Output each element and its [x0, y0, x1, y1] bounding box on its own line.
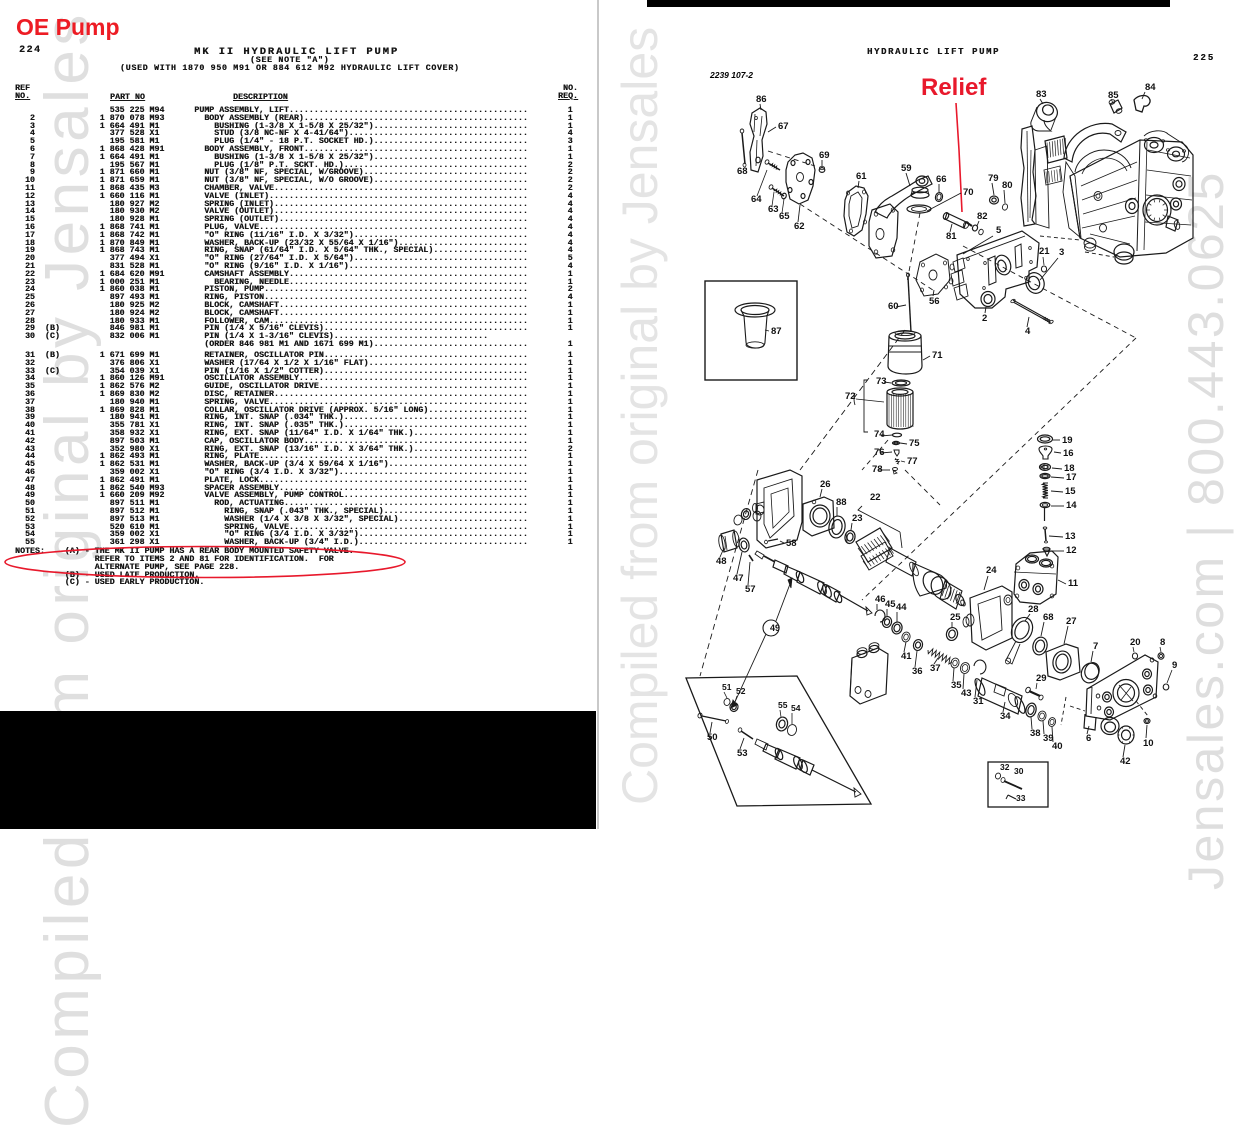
- svg-text:84: 84: [1145, 82, 1156, 93]
- svg-text:40: 40: [1052, 741, 1063, 752]
- svg-text:81: 81: [946, 231, 957, 242]
- svg-text:4: 4: [1025, 326, 1031, 337]
- svg-text:22: 22: [870, 492, 881, 503]
- svg-text:65: 65: [779, 211, 790, 222]
- svg-text:33: 33: [1016, 793, 1026, 803]
- svg-text:47: 47: [733, 573, 744, 584]
- svg-text:88: 88: [836, 497, 847, 508]
- svg-text:55: 55: [778, 700, 788, 710]
- svg-text:63: 63: [768, 204, 779, 215]
- svg-text:86: 86: [756, 94, 767, 105]
- svg-text:23: 23: [852, 513, 863, 524]
- svg-text:24: 24: [986, 565, 997, 576]
- svg-text:9: 9: [1172, 660, 1177, 671]
- svg-text:77: 77: [907, 456, 918, 467]
- svg-text:36: 36: [912, 666, 923, 677]
- svg-text:57: 57: [745, 584, 756, 595]
- svg-text:27: 27: [1066, 616, 1077, 627]
- svg-text:10: 10: [1143, 738, 1154, 749]
- svg-text:56: 56: [929, 296, 940, 307]
- svg-text:35: 35: [951, 680, 962, 691]
- svg-text:82: 82: [977, 211, 988, 222]
- svg-text:79: 79: [988, 173, 999, 184]
- svg-text:68: 68: [1043, 612, 1054, 623]
- svg-text:51: 51: [722, 682, 732, 692]
- svg-text:21: 21: [1039, 246, 1050, 257]
- svg-text:3: 3: [1059, 247, 1064, 258]
- svg-text:30: 30: [1014, 766, 1024, 776]
- svg-text:59: 59: [901, 163, 912, 174]
- svg-text:78: 78: [872, 464, 883, 475]
- svg-text:50: 50: [707, 732, 718, 743]
- svg-text:41: 41: [901, 651, 912, 662]
- svg-text:52: 52: [736, 686, 746, 696]
- svg-text:68: 68: [737, 166, 748, 177]
- svg-text:70: 70: [963, 187, 974, 198]
- svg-text:58: 58: [786, 538, 797, 549]
- svg-text:16: 16: [1063, 448, 1074, 459]
- svg-text:45: 45: [885, 599, 896, 610]
- svg-text:38: 38: [1030, 728, 1041, 739]
- svg-text:7: 7: [1093, 641, 1098, 652]
- svg-text:28: 28: [1028, 604, 1039, 615]
- svg-text:54: 54: [791, 703, 801, 713]
- svg-text:19: 19: [1062, 435, 1073, 446]
- svg-text:85: 85: [1108, 90, 1119, 101]
- svg-text:8: 8: [1160, 637, 1165, 648]
- svg-text:87: 87: [771, 326, 782, 337]
- svg-text:64: 64: [751, 194, 762, 205]
- svg-text:15: 15: [1065, 486, 1076, 497]
- svg-text:34: 34: [1000, 711, 1011, 722]
- svg-text:53: 53: [737, 748, 748, 759]
- svg-text:32: 32: [1000, 762, 1010, 772]
- svg-text:73: 73: [876, 376, 887, 387]
- svg-text:80: 80: [1002, 180, 1013, 191]
- svg-text:26: 26: [820, 479, 831, 490]
- svg-text:75: 75: [909, 438, 920, 449]
- svg-text:66: 66: [936, 174, 947, 185]
- svg-text:43: 43: [961, 688, 972, 699]
- svg-text:61: 61: [856, 171, 867, 182]
- svg-text:11: 11: [1068, 578, 1079, 589]
- svg-text:37: 37: [930, 663, 941, 674]
- svg-text:6: 6: [1086, 733, 1091, 744]
- svg-text:12: 12: [1066, 545, 1077, 556]
- svg-text:48: 48: [716, 556, 727, 567]
- svg-text:5: 5: [996, 225, 1002, 236]
- svg-text:46: 46: [875, 594, 886, 605]
- svg-text:20: 20: [1130, 637, 1141, 648]
- svg-text:74: 74: [874, 429, 885, 440]
- svg-text:69: 69: [819, 150, 830, 161]
- svg-text:29: 29: [1036, 673, 1047, 684]
- svg-text:17: 17: [1066, 472, 1077, 483]
- svg-text:67: 67: [778, 121, 789, 132]
- svg-text:83: 83: [1036, 89, 1047, 100]
- svg-text:31: 31: [973, 696, 984, 707]
- svg-text:13: 13: [1065, 531, 1076, 542]
- svg-text:14: 14: [1066, 500, 1077, 511]
- svg-text:25: 25: [950, 612, 961, 623]
- svg-text:42: 42: [1120, 756, 1131, 767]
- svg-text:44: 44: [896, 602, 907, 613]
- svg-text:2: 2: [982, 313, 987, 324]
- svg-text:62: 62: [794, 221, 805, 232]
- svg-text:71: 71: [932, 350, 943, 361]
